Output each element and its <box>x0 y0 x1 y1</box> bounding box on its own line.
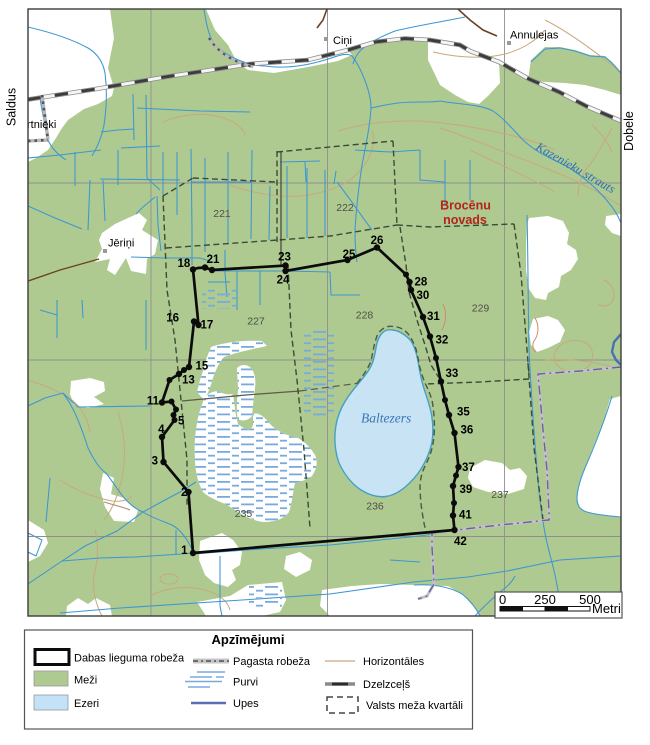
svg-text:41: 41 <box>459 510 472 522</box>
svg-text:rtnieki: rtnieki <box>27 119 56 131</box>
svg-text:13: 13 <box>182 375 195 387</box>
svg-text:Dabas lieguma robeža: Dabas lieguma robeža <box>74 653 185 665</box>
svg-text:Pagasta robeža: Pagasta robeža <box>233 656 311 668</box>
svg-text:Annulejas: Annulejas <box>510 30 559 42</box>
svg-text:2: 2 <box>181 487 187 499</box>
svg-text:32: 32 <box>436 335 449 347</box>
svg-text:Ciņi: Ciņi <box>333 35 352 47</box>
svg-text:Apzīmējumi: Apzīmējumi <box>212 632 285 647</box>
svg-text:Dobele: Dobele <box>622 111 636 151</box>
svg-text:Purvi: Purvi <box>233 677 258 689</box>
svg-text:18: 18 <box>178 258 191 270</box>
svg-text:Dzelzceļš: Dzelzceļš <box>363 679 411 691</box>
svg-text:229: 229 <box>472 303 490 315</box>
svg-text:227: 227 <box>247 316 265 328</box>
svg-text:24: 24 <box>277 275 290 287</box>
svg-text:Metri: Metri <box>592 601 621 616</box>
svg-text:Saldus: Saldus <box>5 88 19 126</box>
svg-text:Valsts meža kvartāli: Valsts meža kvartāli <box>366 700 463 712</box>
svg-text:Ezeri: Ezeri <box>74 698 99 710</box>
svg-text:15: 15 <box>196 361 209 373</box>
svg-text:33: 33 <box>446 368 459 380</box>
svg-text:30: 30 <box>417 290 430 302</box>
svg-text:Horizontāles: Horizontāles <box>363 656 425 668</box>
svg-text:35: 35 <box>457 407 470 419</box>
svg-text:250: 250 <box>534 592 556 607</box>
svg-text:42: 42 <box>454 536 467 548</box>
svg-text:Meži: Meži <box>74 675 97 687</box>
svg-text:16: 16 <box>166 313 179 325</box>
svg-text:0: 0 <box>499 592 506 607</box>
svg-text:17: 17 <box>201 320 214 332</box>
svg-text:5: 5 <box>178 416 185 428</box>
svg-text:28: 28 <box>415 277 428 289</box>
svg-text:25: 25 <box>343 249 356 261</box>
svg-text:Brocēnu: Brocēnu <box>440 199 491 213</box>
svg-text:Baltezers: Baltezers <box>361 411 411 426</box>
svg-text:1: 1 <box>181 545 188 557</box>
svg-text:37: 37 <box>462 462 475 474</box>
svg-text:36: 36 <box>461 425 474 437</box>
svg-text:3: 3 <box>152 456 158 468</box>
svg-text:31: 31 <box>427 311 440 323</box>
svg-text:221: 221 <box>213 208 231 220</box>
svg-text:21: 21 <box>207 254 220 266</box>
svg-text:39: 39 <box>460 484 473 496</box>
svg-text:26: 26 <box>371 235 384 247</box>
svg-text:11: 11 <box>147 396 160 408</box>
svg-text:235: 235 <box>235 508 253 520</box>
svg-text:novads: novads <box>443 213 487 227</box>
svg-text:Jēriņi: Jēriņi <box>108 238 134 250</box>
svg-text:236: 236 <box>366 501 384 513</box>
svg-text:222: 222 <box>336 202 354 214</box>
svg-text:228: 228 <box>356 310 374 322</box>
svg-text:4: 4 <box>158 424 165 436</box>
svg-text:23: 23 <box>278 252 291 264</box>
svg-text:Upes: Upes <box>233 698 259 710</box>
svg-text:237: 237 <box>491 489 509 501</box>
